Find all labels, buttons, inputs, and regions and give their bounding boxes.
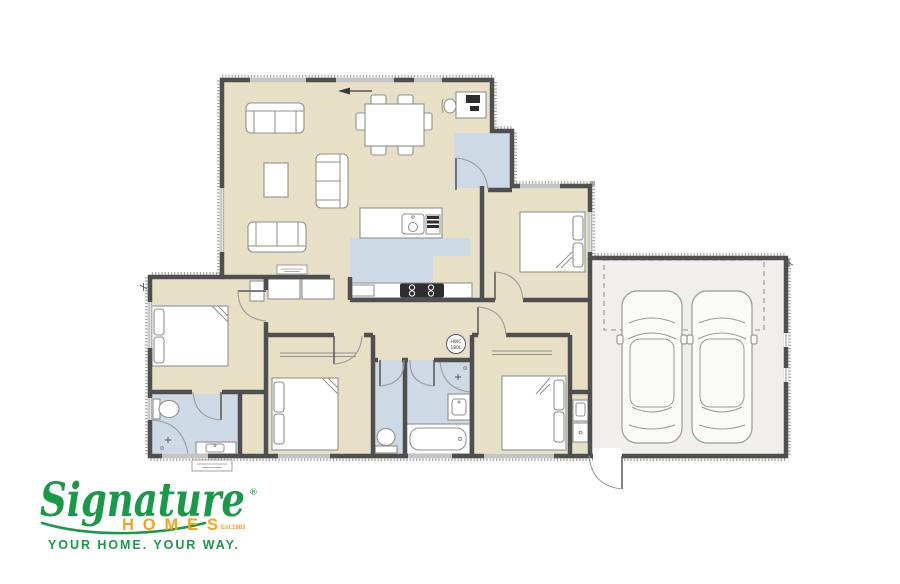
- bed: [502, 376, 566, 450]
- logo-registered-mark: ®: [249, 488, 258, 498]
- logo: Signature ® HOMES Est.1983 YOUR HOME. YO…: [40, 473, 258, 552]
- window: [408, 454, 452, 459]
- floor-plan-image: HWC 180L Signature ® HOMES Est.1983 YOUR…: [0, 0, 900, 584]
- bathtub: [406, 424, 470, 454]
- window: [784, 333, 789, 347]
- dining-table-with-chairs: [356, 95, 432, 155]
- window: [148, 398, 153, 420]
- sofa: [316, 154, 348, 208]
- toilet: [375, 429, 397, 454]
- floor-plan: HWC 180L Signature ® HOMES Est.1983 YOUR…: [0, 0, 900, 584]
- window: [784, 368, 789, 382]
- bed: [152, 306, 228, 366]
- window: [220, 188, 225, 252]
- vanity: [196, 442, 236, 454]
- bed: [272, 378, 338, 450]
- laundry-tub: [573, 400, 588, 442]
- window: [162, 454, 208, 459]
- logo-tagline: YOUR HOME. YOUR WAY.: [48, 538, 238, 552]
- door: [589, 448, 622, 489]
- window: [278, 454, 330, 459]
- hwc-line2: 180L: [450, 345, 462, 351]
- bed: [520, 212, 585, 272]
- toilet: [153, 399, 179, 419]
- entry-floor: [454, 133, 510, 188]
- kitchen-island: [360, 208, 442, 238]
- sofa: [246, 103, 304, 133]
- window: [414, 78, 442, 83]
- hwc-label: HWC 180L: [447, 335, 466, 354]
- window: [336, 78, 394, 83]
- window: [520, 184, 560, 189]
- sofa: [248, 222, 306, 252]
- car: [617, 291, 687, 443]
- logo-established: Est.1983: [221, 525, 246, 531]
- garage-floor: [592, 258, 786, 456]
- kitchen-bench: [350, 283, 472, 298]
- vanity: [448, 394, 470, 420]
- window: [148, 302, 153, 348]
- window: [588, 212, 593, 252]
- window: [250, 78, 306, 83]
- label-box: [192, 460, 232, 471]
- hwc-line1: HWC: [451, 339, 462, 345]
- label-box: [277, 265, 307, 274]
- window: [484, 454, 554, 459]
- car: [687, 291, 757, 443]
- coffee-table: [264, 163, 288, 197]
